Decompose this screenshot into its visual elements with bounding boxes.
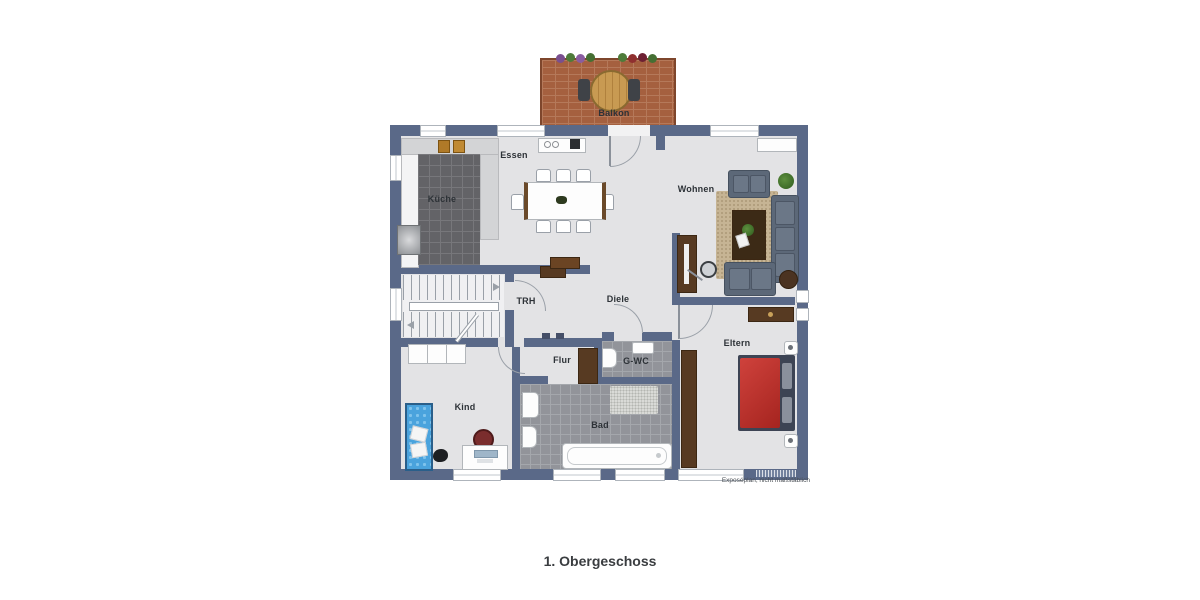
room-label-kind: Kind [455,402,476,412]
balcony-table-icon [590,70,632,112]
balcony-door-opening [608,125,650,136]
nightstand-icon [784,341,798,355]
wardrobe [681,350,697,468]
window [497,125,545,137]
wall [656,125,665,150]
flower-box-icon [648,54,657,63]
room-label-balkon: Balkon [598,108,629,118]
window [390,288,402,321]
toilet-icon [522,426,537,448]
flower-box-icon [566,53,575,62]
stair-arrow-icon [407,321,414,329]
room-label-flur: Flur [553,355,571,365]
kitchen-counter-right [480,154,499,240]
dining-chair-icon [556,220,571,233]
room-label-diele: Diele [607,294,630,304]
hall-cabinet [578,348,598,384]
flower-box-icon [638,53,647,62]
flower-box-icon [576,54,585,63]
washbasin-icon [522,392,539,418]
floorplan-page: Balkon Küche [0,0,1200,600]
cutting-board-icon [438,140,450,153]
window [453,469,501,481]
wall [672,340,680,470]
table-centerpiece-icon [556,196,567,204]
dining-chair-icon [556,169,571,182]
plant-icon [778,173,794,189]
dining-chair-icon [536,220,551,233]
kids-desk [462,445,508,470]
double-bed [738,355,795,431]
window [553,469,601,481]
bed-duvet [740,358,780,428]
plan-title: 1. Obergeschoss [0,553,1200,569]
window [420,125,446,137]
cutting-board-icon [453,140,465,153]
plan-caption: Exposéplan, nicht maßstäblich [600,477,810,484]
bed-pillow-icon [782,397,792,423]
flower-box-icon [628,54,637,63]
toilet-icon [602,348,617,368]
bath-rug [610,386,658,414]
wall [602,332,614,341]
wall [505,274,514,282]
bedroom-sideboard [748,307,794,322]
hall-sideboard [550,257,580,269]
wall [598,377,672,384]
room-label-essen: Essen [500,150,528,160]
kids-bed [405,403,433,471]
washbasin-icon [632,342,654,354]
bed-pillow-icon [782,363,792,389]
side-table-icon [779,270,798,289]
beanbag-icon [433,449,448,462]
balcony-chair-icon [628,79,640,101]
room-label-trh: TRH [516,296,535,306]
floorplan: Balkon Küche [390,58,808,486]
dining-chair-icon [536,169,551,182]
room-label-gwc: G-WC [623,356,649,366]
dining-chair-icon [511,194,524,210]
dining-chair-icon [576,169,591,182]
wall [505,310,514,347]
floor-lamp-icon [700,261,717,278]
staircase [403,275,504,337]
wall [642,332,672,341]
flower-box-icon [618,53,627,62]
wall [672,297,795,305]
wall-niche [796,308,809,321]
nightstand-icon [784,434,798,448]
window [710,125,759,137]
tv-sideboard [677,235,697,293]
room-label-bad: Bad [591,420,609,430]
wall [512,376,548,384]
watermark [756,470,796,477]
stove-icon [397,225,421,255]
dining-chair-icon [576,220,591,233]
wall-fixture-icon [542,333,550,339]
sink-icon [552,141,559,148]
stair-arrow-icon [493,283,500,291]
wall [524,338,594,347]
stair-rail [409,302,499,311]
loveseat [724,262,776,296]
balcony-chair-icon [578,79,590,101]
room-label-wohnen: Wohnen [678,184,715,194]
lowboard [757,138,797,152]
cooktop-icon [570,139,580,149]
wall-niche [796,290,809,303]
kids-wardrobe [408,344,466,364]
flower-box-icon [556,54,565,63]
flower-box-icon [586,53,595,62]
armchair [728,170,770,198]
bathtub-icon [562,443,672,469]
kitchen-tile-floor [418,154,480,265]
wall-fixture-icon [556,333,564,339]
room-label-eltern: Eltern [724,338,751,348]
room-label-kueche: Küche [428,194,457,204]
sink-icon [544,141,551,148]
